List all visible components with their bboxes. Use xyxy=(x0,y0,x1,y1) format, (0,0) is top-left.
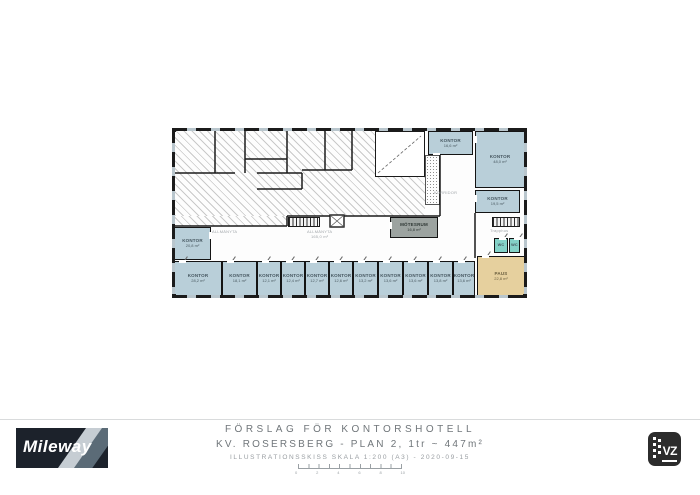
wall-corner xyxy=(172,128,176,132)
viz-logo-dot xyxy=(658,445,661,448)
corridor-labels-layer: ALLMÄNYTAALLMÄNYTA165,0 m²KORRIDORTrapph… xyxy=(172,128,527,298)
scale-tick-label: 0 xyxy=(295,470,297,475)
scale-bar-labels: 0246810 xyxy=(295,470,405,475)
corridor-label: KORRIDOR xyxy=(434,190,457,195)
viz-logo-dot xyxy=(658,451,661,454)
wall-corner xyxy=(172,294,176,298)
scale-tick-label: 2 xyxy=(316,470,318,475)
corridor-label: ALLMÄNYTA xyxy=(212,229,237,234)
drawing-sheet: KONTOR20,8 m²KONTOR28,2 m²KONTOR18,1 m²K… xyxy=(0,0,700,495)
viz-logo-dot xyxy=(653,437,656,440)
scale-tick-label: 6 xyxy=(358,470,360,475)
scale-tick-label: 4 xyxy=(337,470,339,475)
viz-logo-subtext-bar xyxy=(662,460,677,463)
corridor-label: ALLMÄNYTA165,0 m² xyxy=(307,229,332,239)
mileway-logo: Mileway xyxy=(16,428,108,468)
wall-corner xyxy=(523,294,527,298)
scale-tick-label: 10 xyxy=(401,470,405,475)
viz-logo-dot xyxy=(653,455,656,458)
corridor-label: Trapphus xyxy=(490,228,508,233)
footer-divider-line xyxy=(0,419,700,420)
scale-bar xyxy=(298,464,402,469)
floor-plan: KONTOR20,8 m²KONTOR28,2 m²KONTOR18,1 m²K… xyxy=(172,128,527,298)
viz-logo-text: VZ xyxy=(663,444,677,458)
viz-logo: VZ xyxy=(648,432,681,466)
wall-corner xyxy=(523,128,527,132)
viz-logo-dot xyxy=(658,439,661,442)
scale-tick-label: 8 xyxy=(379,470,381,475)
mileway-logo-text: Mileway xyxy=(23,437,92,457)
viz-logo-dot xyxy=(653,449,656,452)
viz-logo-dot xyxy=(653,443,656,446)
